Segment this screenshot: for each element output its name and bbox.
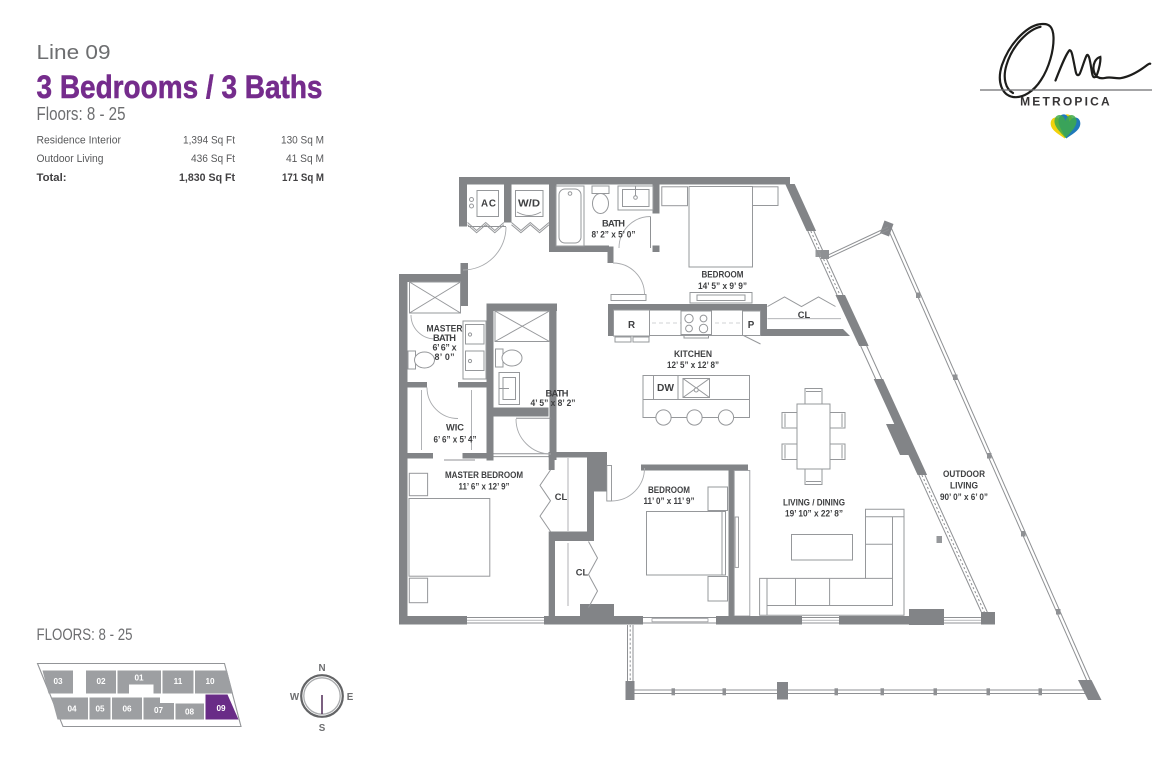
svg-text:90’ 0” x 6’ 0”: 90’ 0” x 6’ 0”	[940, 492, 988, 502]
svg-text:P: P	[748, 320, 755, 331]
svg-text:1,830 Sq Ft: 1,830 Sq Ft	[179, 172, 235, 184]
svg-text:BEDROOM: BEDROOM	[702, 270, 744, 280]
svg-text:11’ 6” x 12’ 9”: 11’ 6” x 12’ 9”	[459, 482, 510, 492]
svg-text:04: 04	[67, 705, 77, 714]
svg-text:3 Bedrooms / 3 Baths: 3 Bedrooms / 3 Baths	[37, 69, 323, 105]
svg-text:130 Sq M: 130 Sq M	[281, 135, 324, 147]
svg-text:171 Sq M: 171 Sq M	[282, 172, 324, 184]
svg-text:436 Sq Ft: 436 Sq Ft	[191, 153, 235, 165]
svg-text:MASTER: MASTER	[427, 324, 463, 334]
svg-text:N: N	[318, 663, 325, 674]
svg-text:WIC: WIC	[446, 423, 464, 433]
svg-text:CL: CL	[798, 310, 811, 320]
svg-text:09: 09	[216, 704, 226, 713]
svg-text:14’ 5” x 9’ 9”: 14’ 5” x 9’ 9”	[698, 281, 747, 291]
svg-text:6’ 6” x: 6’ 6” x	[433, 343, 457, 353]
svg-text:10: 10	[205, 677, 215, 686]
svg-text:Residence Interior: Residence Interior	[37, 135, 122, 147]
svg-text:BATH: BATH	[433, 333, 456, 343]
svg-text:1,394 Sq Ft: 1,394 Sq Ft	[183, 135, 235, 147]
svg-text:LIVING: LIVING	[950, 481, 978, 491]
svg-text:6’ 6” x 5’ 4”: 6’ 6” x 5’ 4”	[434, 435, 477, 445]
svg-text:8’ 2” x 5’ 0”: 8’ 2” x 5’ 0”	[592, 230, 636, 240]
svg-text:Line 09: Line 09	[37, 41, 111, 64]
svg-text:W: W	[290, 692, 300, 703]
svg-text:OUTDOOR: OUTDOOR	[943, 469, 985, 479]
svg-text:12’ 5” x 12’ 8”: 12’ 5” x 12’ 8”	[667, 360, 719, 370]
svg-text:FLOORS: 8 - 25: FLOORS: 8 - 25	[37, 626, 133, 644]
svg-text:AC: AC	[481, 199, 496, 210]
svg-text:R: R	[628, 320, 635, 331]
svg-text:03: 03	[53, 677, 63, 686]
svg-text:02: 02	[96, 677, 106, 686]
svg-text:W/D: W/D	[518, 199, 540, 210]
svg-text:Outdoor Living: Outdoor Living	[37, 153, 104, 165]
svg-text:MASTER BEDROOM: MASTER BEDROOM	[445, 470, 523, 480]
svg-text:19’ 10” x 22’ 8”: 19’ 10” x 22’ 8”	[785, 509, 843, 519]
svg-text:11: 11	[174, 677, 183, 686]
svg-text:CL: CL	[576, 568, 589, 578]
svg-text:08: 08	[185, 708, 195, 717]
svg-text:CL: CL	[555, 492, 568, 502]
svg-text:Total:: Total:	[37, 172, 67, 184]
svg-text:S: S	[319, 723, 326, 734]
svg-text:Floors: 8 - 25: Floors: 8 - 25	[37, 103, 126, 124]
svg-text:4’ 5” x 8’ 2”: 4’ 5” x 8’ 2”	[531, 398, 576, 408]
svg-text:06: 06	[122, 705, 132, 714]
svg-text:07: 07	[154, 706, 164, 715]
svg-text:05: 05	[95, 705, 105, 714]
svg-text:BATH: BATH	[546, 389, 569, 399]
svg-text:LIVING / DINING: LIVING / DINING	[783, 498, 845, 508]
svg-text:DW: DW	[657, 383, 675, 394]
svg-text:11’ 0” x 11’ 9”: 11’ 0” x 11’ 9”	[644, 496, 695, 506]
svg-text:41 Sq M: 41 Sq M	[286, 153, 324, 165]
svg-text:01: 01	[134, 674, 144, 683]
svg-text:8’ 0”: 8’ 0”	[435, 352, 455, 362]
svg-text:BATH: BATH	[602, 219, 625, 229]
svg-text:METROPICA: METROPICA	[1020, 95, 1112, 109]
svg-text:KITCHEN: KITCHEN	[674, 349, 712, 359]
svg-text:BEDROOM: BEDROOM	[648, 485, 690, 495]
svg-text:E: E	[347, 692, 354, 703]
